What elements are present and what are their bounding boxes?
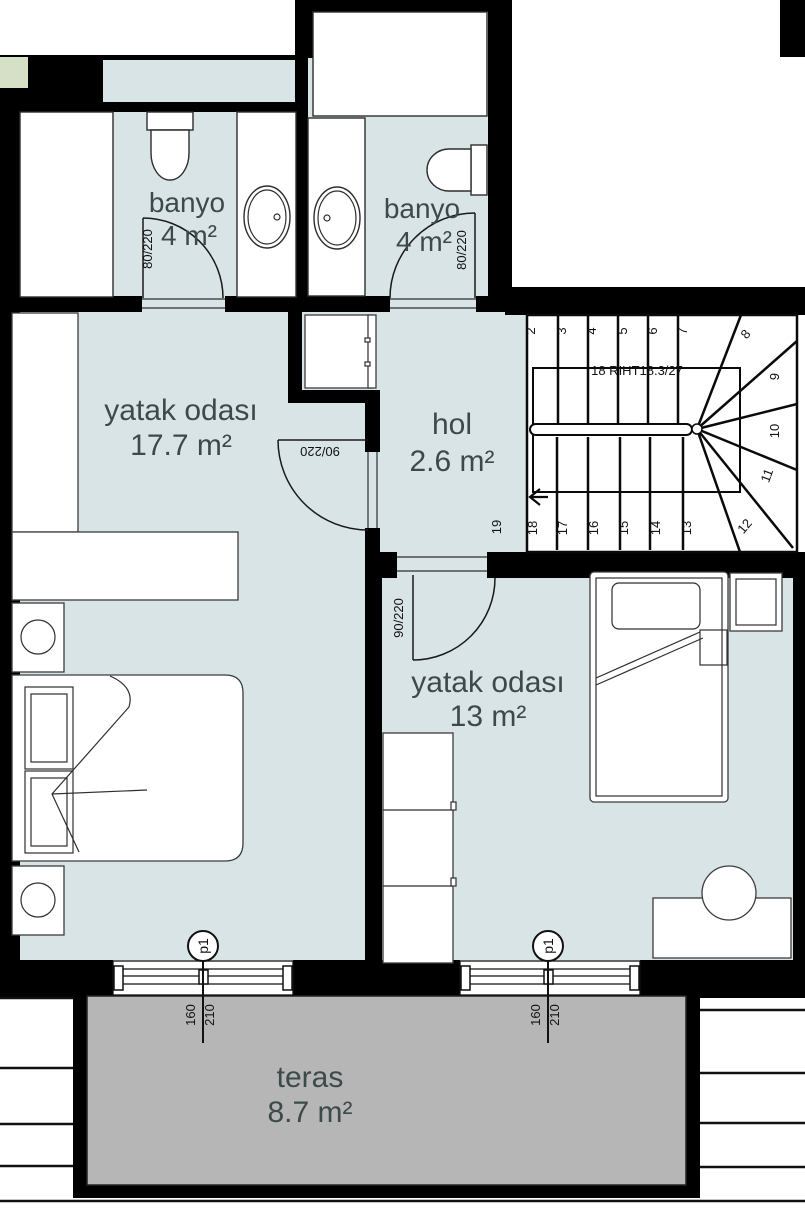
step-number: 18 [525,521,540,535]
terrace-area [87,996,686,1185]
niche-left-wall [288,312,302,403]
stair-handrail-cap [692,424,702,434]
hall-cabinet-door [368,315,376,388]
step-number: 2 [523,327,538,334]
terrace-bottom-wall [73,1185,700,1198]
wardrobe [12,313,78,532]
nightstand [12,603,64,672]
bedroom2-name: yatak odası [411,666,564,699]
bedroom2-area: 13 m² [450,700,527,733]
terrace-name: teras [277,1061,344,1094]
sink-icon [314,187,360,249]
step-number: 5 [615,327,630,334]
window-marker-label: p1 [195,938,211,954]
nightstand [12,866,64,935]
step-number: 13 [679,521,694,535]
bath-bottom-wall-a [0,296,140,312]
bathroom2-name: banyo [384,193,460,224]
bottom-wall-pier-a [0,960,113,998]
step-number: 7 [675,327,690,334]
terrace-left-wall [73,993,87,1198]
bedroom1-door-gap [365,452,380,528]
door-size-label: 90/220 [300,444,340,459]
terrace-right-wall [686,993,700,1198]
step-number: 4 [584,327,599,334]
hall-furniture [305,315,376,388]
bathroom1-counter-left [20,112,113,297]
bathroom1-area: 4 m² [161,220,217,251]
step-number: 14 [648,521,663,535]
toilet-tank-icon [471,145,487,195]
cabinet-hinge [365,362,370,366]
bathrooms-divider-wall [295,0,308,312]
window-height-label: 210 [547,1004,562,1026]
hall-area: 2.6 m² [409,445,494,478]
sink-icon [244,186,290,248]
door-size-label: 90/220 [391,598,406,638]
wardrobe [383,733,453,963]
shower-niche-strip [103,60,295,102]
step-number: 19 [489,520,504,534]
bath-bottom-wall-b [228,296,390,312]
step-number: 3 [554,327,569,334]
green-accent-square [0,57,28,88]
step-number: 16 [586,521,601,535]
double-bed [12,675,243,861]
right-exterior-wall [793,552,805,998]
step-number: 15 [616,521,631,535]
step-number: 6 [645,327,660,334]
toilet-bowl-icon [151,130,189,180]
floor-plan-drawing: 18 RIHT18.3/27 2 3 4 5 6 7 8 9 10 11 12 … [0,0,805,1209]
stair-handrail [530,424,692,435]
hall-name: hol [432,408,472,441]
nightstand [730,573,782,631]
door-size-label: 80/220 [454,230,469,270]
bathtub-icon [313,12,487,116]
window-width-label: 160 [528,1004,543,1026]
window-bedroom2 [460,961,640,995]
staircase: 18 RIHT18.3/27 2 3 4 5 6 7 8 9 10 11 12 … [489,315,797,552]
wardrobe-knob [451,878,456,886]
bottom-wall-pier-c [640,960,805,998]
window-width-label: 160 [183,1004,198,1026]
bathroom2-right-wall [488,0,512,300]
hall-cabinet [305,315,372,388]
bedroom1-area: 17.7 m² [130,429,232,462]
bedrooms-divider-wall [365,578,382,960]
door-size-label: 80/220 [140,229,155,269]
dresser [12,532,238,600]
chair-icon [702,866,756,920]
step-number: 9 [767,372,783,381]
cabinet-hinge [365,338,370,342]
window-marker-label: p1 [540,938,556,954]
wardrobe-knob [451,802,456,810]
floor-plan-page: 18 RIHT18.3/27 2 3 4 5 6 7 8 9 10 11 12 … [0,0,805,1209]
bathroom2-area: 4 m² [396,226,452,257]
bedroom1-name: yatak odası [104,394,257,427]
bottom-wall-pier-b [293,960,460,998]
step-number: 10 [767,424,782,438]
bedroom2-door-gap [397,552,487,578]
stair-top-wall [505,287,805,315]
window-height-label: 210 [202,1004,217,1026]
stair-note: 18 RIHT18.3/27 [591,363,683,378]
top-right-wall-stub [780,0,805,57]
toilet-tank-icon [147,112,193,130]
step-number: 17 [555,521,570,535]
terrace-area: 8.7 m² [267,1096,352,1129]
toilet-bowl-icon [427,149,471,191]
single-bed [590,572,728,802]
terrace-deck [87,996,686,1185]
bathroom1-name: banyo [149,187,225,218]
bathroom2-top-wall [308,0,490,12]
